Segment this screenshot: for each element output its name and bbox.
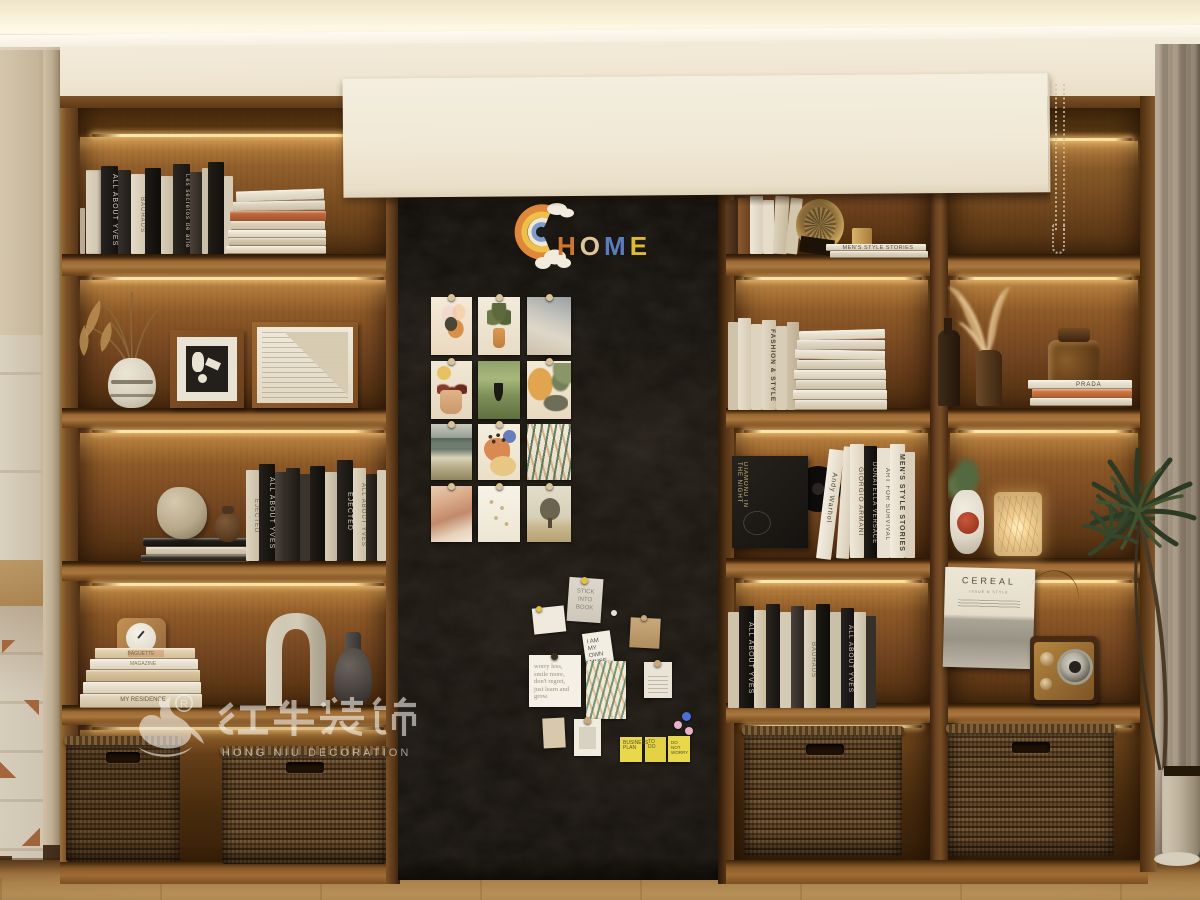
svg-text:HONG NIU DECORATION: HONG NIU DECORATION [222,747,411,759]
svg-text:R: R [180,699,188,711]
